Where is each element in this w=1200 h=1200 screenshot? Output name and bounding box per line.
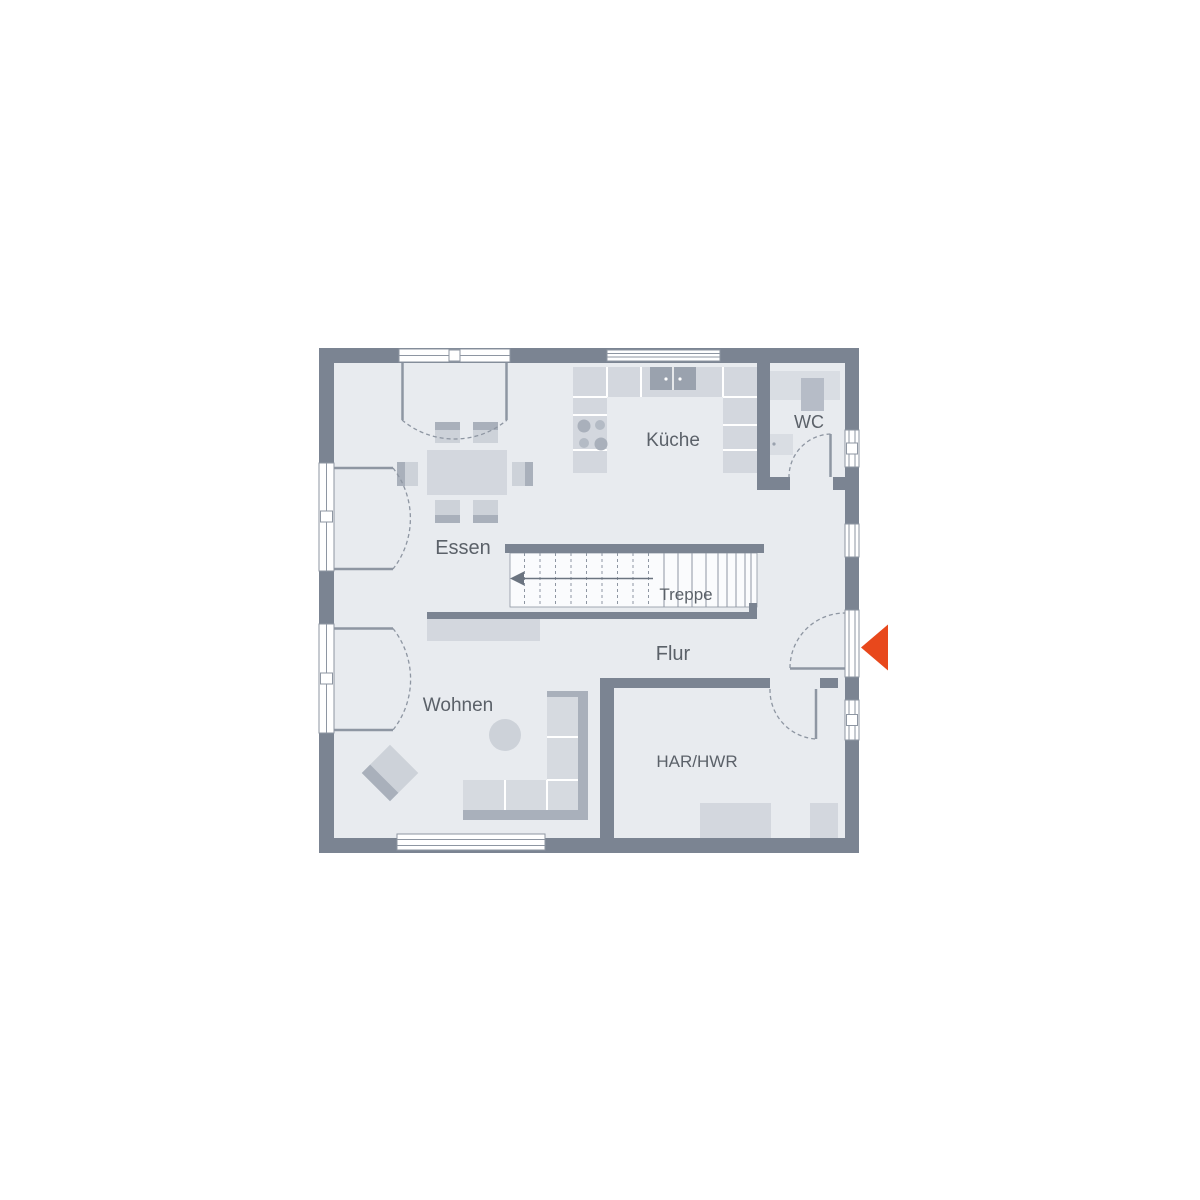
dining-chair [473, 500, 498, 523]
wall-har-west [600, 678, 614, 838]
wall-har-north [600, 678, 770, 688]
wc-toilet [801, 378, 824, 411]
kitchen-sink-unit [650, 367, 696, 390]
wall-wc-divider [757, 363, 770, 490]
wc-basin [768, 434, 793, 455]
coffee-table [489, 719, 521, 751]
dining-chair [435, 422, 460, 443]
window-har-east [845, 700, 859, 740]
stair-balustrade [427, 612, 757, 619]
room-label-har-hwr: HAR/HWR [656, 752, 737, 771]
room-label-treppe: Treppe [659, 585, 712, 604]
dining-table [427, 450, 507, 495]
floor-plan-svg: Essen Küche WC Treppe Flur Wohnen HAR/HW… [0, 0, 1200, 1200]
window-kitchen-north [607, 350, 720, 361]
wall-east [845, 348, 859, 853]
room-label-wc: WC [794, 412, 824, 432]
dining-chair [473, 422, 498, 443]
room-label-flur: Flur [656, 643, 691, 665]
staircase [510, 553, 757, 607]
window-hall-east [845, 524, 859, 557]
door-post-icon [321, 511, 333, 522]
room-label-kueche: Küche [646, 430, 700, 451]
sideboard [427, 619, 540, 641]
window-post-icon [847, 715, 858, 726]
stair-balustrade-stub [749, 603, 757, 612]
dining-chair [512, 462, 533, 486]
room-label-wohnen: Wohnen [423, 695, 493, 716]
window-wc-east [845, 430, 859, 467]
entrance-arrow-icon [861, 625, 888, 671]
wall-stair-north [505, 544, 764, 553]
wall-har-stub [820, 678, 838, 688]
wall-west [319, 348, 334, 853]
door-post-icon [449, 350, 460, 361]
page: Essen Küche WC Treppe Flur Wohnen HAR/HW… [0, 0, 1200, 1200]
utility-appliances [700, 803, 838, 838]
dining-chair [397, 462, 418, 486]
window-living-south [397, 834, 545, 850]
room-label-essen: Essen [435, 537, 491, 559]
door-post-icon [321, 673, 333, 684]
wall-wc-stub [833, 477, 845, 490]
window-post-icon [847, 443, 858, 454]
wall-wc-south [757, 477, 790, 490]
dining-chair [435, 500, 460, 523]
